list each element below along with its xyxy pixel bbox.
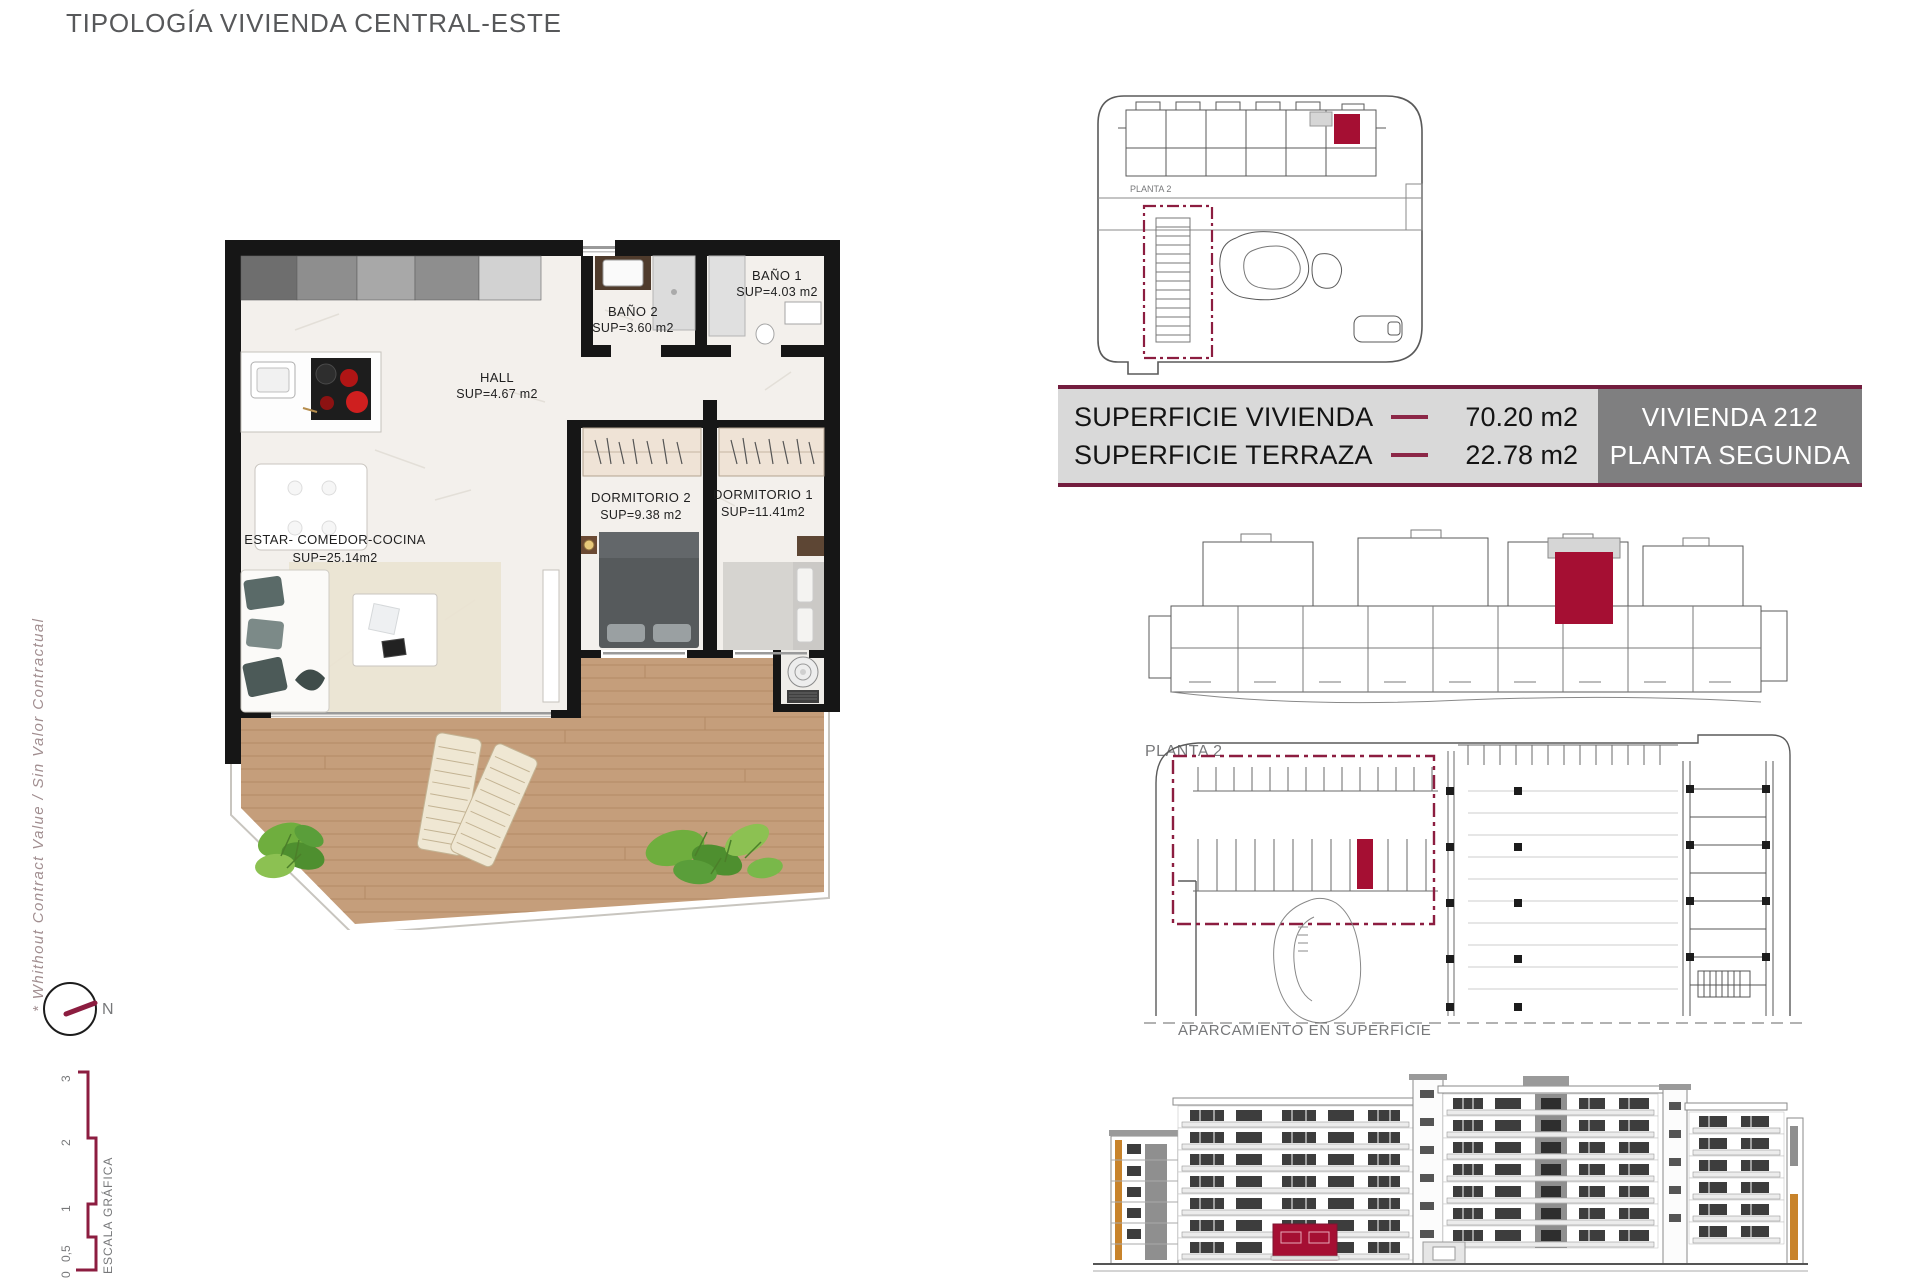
parking-blob [1274,898,1361,1022]
scale-bar-title: ESCALA GRÁFICA [100,1157,115,1274]
building-elevation [1093,1074,1808,1276]
room-label-bano2: BAÑO 2 [608,304,658,319]
ac-unit [787,690,819,703]
surface-vivienda-value: 70.20 m2 [1446,402,1598,433]
landscape-blob-small [1312,254,1342,289]
kitchen-cabinets [241,256,541,300]
room-area-hall: SUP=4.67 m2 [456,387,537,401]
scale-tick-2: 2 [59,1139,73,1146]
plan-sheet: TIPOLOGÍA VIVIENDA CENTRAL-ESTE [0,0,1920,1280]
elevation-right-block [1685,1103,1787,1244]
bathroom1-toilet [756,324,774,344]
room-area-bano2: SUP=3.60 m2 [592,321,673,335]
elevation-left-wing [1109,1130,1180,1264]
page-title: TIPOLOGÍA VIVIENDA CENTRAL-ESTE [66,8,562,39]
surface-summary-table: SUPERFICIE VIVIENDA 70.20 m2 SUPERFICIE … [1058,385,1862,487]
surface-rows: SUPERFICIE VIVIENDA 70.20 m2 SUPERFICIE … [1058,389,1598,483]
plate-bottom-edge [1171,692,1761,703]
room-area-living: SUP=25.14m2 [293,551,378,565]
parking-plan [1138,731,1808,1031]
car-icon [1354,316,1402,342]
landscape-blob [1220,232,1309,300]
plate-highlight-unit [1555,552,1613,624]
scale-tick-05: 0,5 [59,1245,73,1262]
elevation-center-block [1423,1076,1663,1264]
site-highlight-unit [1334,114,1360,144]
elevation-right-wing [1787,1118,1803,1264]
kitchen-counter [241,352,381,432]
room-label-hall: HALL [480,370,514,385]
parking-plan-label: APARCAMIENTO EN SUPERFICIE [1178,1022,1431,1039]
elevation-center-tower [1409,1074,1447,1264]
garage-structure [1446,745,1773,1016]
surface-terraza-value: 22.78 m2 [1446,440,1598,471]
bathroom2-sink [603,260,643,286]
surface-row-vivienda: SUPERFICIE VIVIENDA 70.20 m2 [1074,402,1598,433]
coffee-table [353,594,437,666]
compass-north-label: N [102,1001,114,1018]
scale-tick-0: 0 [59,1271,73,1278]
site-plan-label: PLANTA 2 [1130,184,1171,194]
room-area-bano1: SUP=4.03 m2 [736,285,817,299]
parking-dashed-box [1173,756,1434,924]
sofa [241,570,329,712]
surface-vivienda-label: SUPERFICIE VIVIENDA [1074,402,1373,433]
unit-floor: PLANTA SEGUNDA [1610,440,1851,471]
bathroom1-sink [785,302,821,324]
utility-nook [787,657,819,703]
compass-icon: N [40,978,126,1042]
site-plan-top: PLANTA 2 [1058,88,1458,378]
parking-highlight-stall [1357,839,1373,889]
room-label-bano1: BAÑO 1 [752,268,802,283]
surface-terraza-label: SUPERFICIE TERRAZA [1074,440,1373,471]
scale-bar: 3 2 1 0,5 0 ESCALA GRÁFICA [46,1066,120,1280]
disclaimer-note: * Whithout Contract Value / Sin Valor Co… [30,552,56,1012]
elevation-right-tower [1659,1084,1691,1264]
unit-identity-box: VIVIENDA 212 PLANTA SEGUNDA [1598,389,1862,483]
wardrobe-dorm1 [719,428,824,476]
wardrobe-dorm2 [583,428,701,476]
apartment-floor-plan: ESTAR- COMEDOR-COCINA SUP=25.14m2 HALL S… [225,240,840,930]
leader-line [1391,415,1428,419]
surface-row-terraza: SUPERFICIE TERRAZA 22.78 m2 [1074,440,1598,471]
scale-tick-1: 1 [59,1205,73,1212]
tv-bench [543,570,559,702]
stairs [1698,971,1750,997]
surface-parking-rows [1193,767,1438,891]
elevation-highlight-unit [1271,1224,1339,1260]
site-gray-unit [1310,112,1332,126]
room-label-living: ESTAR- COMEDOR-COCINA [244,532,426,547]
leader-line [1391,453,1428,457]
room-area-dorm2: SUP=9.38 m2 [600,508,681,522]
scale-tick-3: 3 [59,1075,73,1082]
unit-name: VIVIENDA 212 [1642,402,1819,433]
room-area-dorm1: SUP=11.41m2 [721,505,805,519]
floor-plate-planta2: PLANTA 2 [1143,516,1793,766]
room-label-dorm2: DORMITORIO 2 [591,490,691,505]
room-label-dorm1: DORMITORIO 1 [713,487,813,502]
